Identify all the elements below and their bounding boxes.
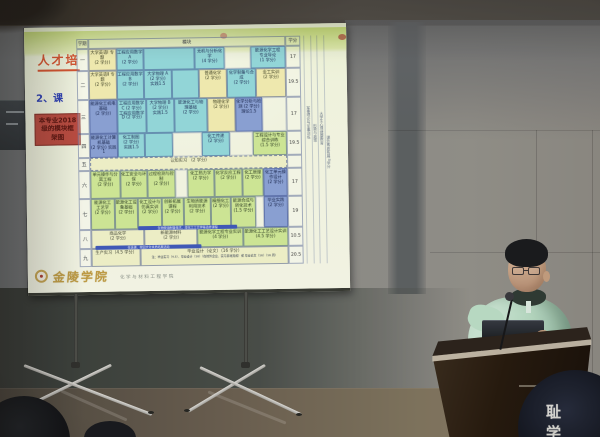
semester-label: 九 xyxy=(79,249,91,267)
wall-top-right-shade xyxy=(345,20,600,140)
course-cell: 大学英语Ⅰ 专 题 (2 学分) xyxy=(88,49,116,71)
credits-value: 17 xyxy=(285,46,300,68)
semester-label: 四 xyxy=(78,134,90,158)
slide-section-heading: 2、课 xyxy=(36,89,63,104)
course-cell: 生产实习（4.5 学分） xyxy=(91,248,141,267)
course-cell: 化工原理 (2 学分) xyxy=(242,168,264,196)
semester-label: 一 xyxy=(76,49,88,71)
course-cell: 普通化学 (2 学分) xyxy=(199,69,227,98)
course-cell: 化学制备与合 成 (2 学分) xyxy=(227,68,257,97)
course-cell: 工程应用数学 C (2 学分) 工程应用数学 D (2 学分) xyxy=(117,99,147,133)
course-cell: 大学物理 A (2 学分) 实践1.5 xyxy=(144,70,172,99)
school-name-calligraphy: 金陵学院 xyxy=(52,268,110,286)
table-row: 六单元操作与分 离工程 (2 学分)化工安全与环 保 (2 学分)过程检测与控 … xyxy=(78,168,302,200)
course-cell: 工程设计与专业 综合训练 (1.5 学分) xyxy=(253,131,287,156)
course-cell: 能源化工工艺设计实训 (4.5 学分) xyxy=(243,227,289,247)
course-cell: 能源合成与 转化技术 (1.5 学分) xyxy=(230,196,256,227)
course-cell: 能源化学工程 专业导论 (1 学分) xyxy=(250,46,286,69)
course-cells: 能源化工 工艺学 (2 学分)能源化工设 备基础 (2 学分)化工设计与 仿真实… xyxy=(91,196,288,230)
course-cell: 金工实训 (2 学分) xyxy=(256,68,286,97)
course-cell: 化工热力学 (2 学分) xyxy=(187,169,215,197)
course-cell: 工程应用数学 A (2 学分) xyxy=(116,48,144,70)
credits-value: 19.5 xyxy=(287,131,302,155)
course-cell: 能源化工机电 基础 (2 学分) xyxy=(89,100,117,134)
semester-label: 六 xyxy=(78,171,90,199)
course-cell xyxy=(143,47,195,70)
course-cell: 能源化学工程专业实训 (4 学分) xyxy=(198,228,244,248)
course-cell: 大学英语Ⅱ 专 题 (2 学分) xyxy=(89,71,117,100)
school-logo-icon xyxy=(35,270,48,283)
course-cell: 无机与分析化 学 (4 学分) xyxy=(195,47,225,69)
credits-value: 17 xyxy=(287,168,302,196)
course-cell xyxy=(171,69,199,98)
course-cell: 化学分析与检 测 (2 学分) 理论1.5 xyxy=(235,97,263,131)
course-cell: 能源化工设 备基础 (2 学分) xyxy=(114,198,138,229)
presenter-ear xyxy=(543,271,550,282)
course-cell xyxy=(224,46,250,68)
course-cell xyxy=(172,132,202,156)
presenter-hair xyxy=(505,239,548,267)
course-cells: 单元操作与分 离工程 (2 学分)化工安全与环 保 (2 学分)过程检测与控 制… xyxy=(90,168,287,199)
glasses-bridge xyxy=(524,270,528,271)
table-side-columns: 军事理论与军事训练形势与政策大学生心理健康教育课外素质拓展 8学分 xyxy=(303,35,333,263)
glasses-icon xyxy=(512,267,524,275)
course-cell: 能源化工 工艺学 (2 学分) xyxy=(91,199,115,230)
lecture-hall-photo: 耻 学 人才培 2、课 本专业2018 级的模块框 架图 学期 模块 学分 一大… xyxy=(0,0,600,437)
course-cell: 大学物理 B (2 学分) 实践1.5 xyxy=(146,99,174,133)
course-cell xyxy=(230,131,254,155)
tripod-hub xyxy=(71,362,80,368)
course-cell: 能源化工与物 理基础 (2 学分) xyxy=(174,98,208,133)
table-row: 四能源化工计算 机基础 (2 学分) 实践1化工制图 (2 学分) 实践1.5化… xyxy=(78,131,302,159)
microphone-icon xyxy=(505,292,514,301)
col-header-credits: 学分 xyxy=(285,36,300,46)
col-header-semester: 学期 xyxy=(76,39,88,49)
course-cell xyxy=(145,133,173,157)
course-cell: 化工单元操 作设计 (2 学分) xyxy=(264,168,288,196)
course-cell: 毕业实践 (2 学分) xyxy=(264,196,288,227)
semester-label: 七 xyxy=(79,199,91,230)
credits-value xyxy=(287,155,302,168)
course-cell: 化工安全与环 保 (2 学分) xyxy=(120,170,148,198)
course-cell: 毕业设计（论文）（16 学分）注：毕业实习（4.5）、毕业设计（16）（在校外企… xyxy=(141,246,289,266)
credits-value: 10.5 xyxy=(288,227,303,246)
table-row: 七能源化工 工艺学 (2 学分)能源化工设 备基础 (2 学分)化工设计与 仿真… xyxy=(79,196,303,231)
table-row: 三能源化工机电 基础 (2 学分)工程应用数学 C (2 学分) 工程应用数学 … xyxy=(77,97,302,135)
course-cell xyxy=(262,97,286,131)
slide-footer: 金陵学院 化学与材料工程学院 xyxy=(28,264,350,289)
credits-value: 17 xyxy=(286,97,302,131)
tripod-hub xyxy=(241,362,250,368)
course-cells: 大学英语Ⅱ 专 题 (2 学分)工程应用数学 B (2 学分)大学物理 A (2… xyxy=(89,68,286,100)
glasses-icon xyxy=(528,267,540,275)
wall-seam xyxy=(388,130,600,131)
credits-value: 19.5 xyxy=(286,68,301,97)
course-cells: 能源化工机电 基础 (2 学分)工程应用数学 C (2 学分) 工程应用数学 D… xyxy=(89,97,287,134)
tripod-foot xyxy=(148,411,154,414)
department-name: 化学与材料工程学院 xyxy=(120,274,175,281)
tripod-foot xyxy=(296,413,302,416)
slide-title-partial: 人才培 xyxy=(37,51,79,72)
wall-inscription-text: 耻 学 xyxy=(546,401,600,437)
semester-label: 五 xyxy=(78,158,90,171)
credits-value: 19 xyxy=(288,196,303,227)
slide-callout-box: 本专业2018 级的模块框 架图 xyxy=(34,113,80,146)
course-cell: 化工制图 (2 学分) 实践1.5 xyxy=(117,133,145,157)
tripod-pole xyxy=(74,294,78,368)
course-cell: 过程检测与控 制 (2 学分) xyxy=(147,170,175,198)
course-cells: 能源化工计算 机基础 (2 学分) 实践1化工制图 (2 学分) 实践1.5化工… xyxy=(90,131,287,158)
semester-label: 八 xyxy=(79,230,91,249)
semester-label: 二 xyxy=(77,71,89,100)
curriculum-table: 学期 模块 学分 一大学英语Ⅰ 专 题 (2 学分)工程应用数学 A (2 学分… xyxy=(76,36,304,267)
course-cell: 精细化工 (2 学分) xyxy=(211,197,231,228)
course-cell: 能源化工计算 机基础 (2 学分) 实践1 xyxy=(90,134,118,158)
tripod-foot xyxy=(184,409,190,412)
course-cell: 创新拓展 课程 (2 学分) xyxy=(162,198,184,229)
cell-note: 注：毕业实习（4.5）、毕业设计（16）（在校外企业、实习基地完成）或 毕业论文… xyxy=(142,254,288,260)
course-cell: 单元操作与分 离工程 (2 学分) xyxy=(90,171,120,199)
course-cell xyxy=(175,169,187,197)
presentation-slide: 人才培 2、课 本专业2018 级的模块框 架图 学期 模块 学分 一大学英语Ⅰ… xyxy=(24,23,350,293)
course-cell: 化学反应工程 (2 学分) xyxy=(214,169,242,197)
course-cell: 生物质能源 利用技术 (2 学分) xyxy=(183,197,211,228)
table-row: 二大学英语Ⅱ 专 题 (2 学分)工程应用数学 B (2 学分)大学物理 A (… xyxy=(77,68,301,101)
credits-value: 20.5 xyxy=(288,246,303,264)
wall-seam xyxy=(592,130,593,392)
course-cell: 化工设计与 仿真实训 (2 学分) xyxy=(138,198,162,229)
course-cell: 工程应用数学 B (2 学分) xyxy=(116,70,144,99)
projector-screen: 人才培 2、课 本专业2018 级的模块框 架图 学期 模块 学分 一大学英语Ⅰ… xyxy=(24,23,350,296)
presenter-shirt-placket xyxy=(526,301,531,313)
wall-lower-band xyxy=(0,288,470,392)
course-cell: 化工传递 (2 学分) xyxy=(202,132,230,156)
course-cell: 物理化学 (2 学分) xyxy=(207,98,235,132)
course-cells: 大学英语Ⅰ 专 题 (2 学分)工程应用数学 A (2 学分)无机与分析化 学 … xyxy=(88,46,285,71)
semester-label: 三 xyxy=(77,100,90,134)
tripod-pole xyxy=(244,292,248,368)
